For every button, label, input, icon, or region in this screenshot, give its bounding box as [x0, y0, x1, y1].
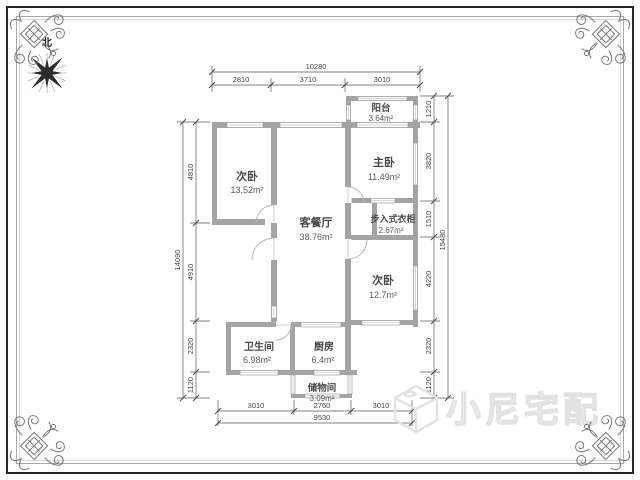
floorplan-page: 北 — [0, 0, 640, 480]
flourish-icon — [10, 10, 64, 64]
flourish-icon — [10, 416, 64, 470]
flourish-icon — [576, 416, 630, 470]
corner-flourish-top-left — [8, 8, 66, 66]
outer-border-line — [6, 6, 634, 474]
corner-flourish-bottom-right — [574, 414, 632, 472]
corner-flourish-bottom-left — [8, 414, 66, 472]
corner-flourish-top-right — [574, 8, 632, 66]
flourish-icon — [576, 10, 630, 64]
